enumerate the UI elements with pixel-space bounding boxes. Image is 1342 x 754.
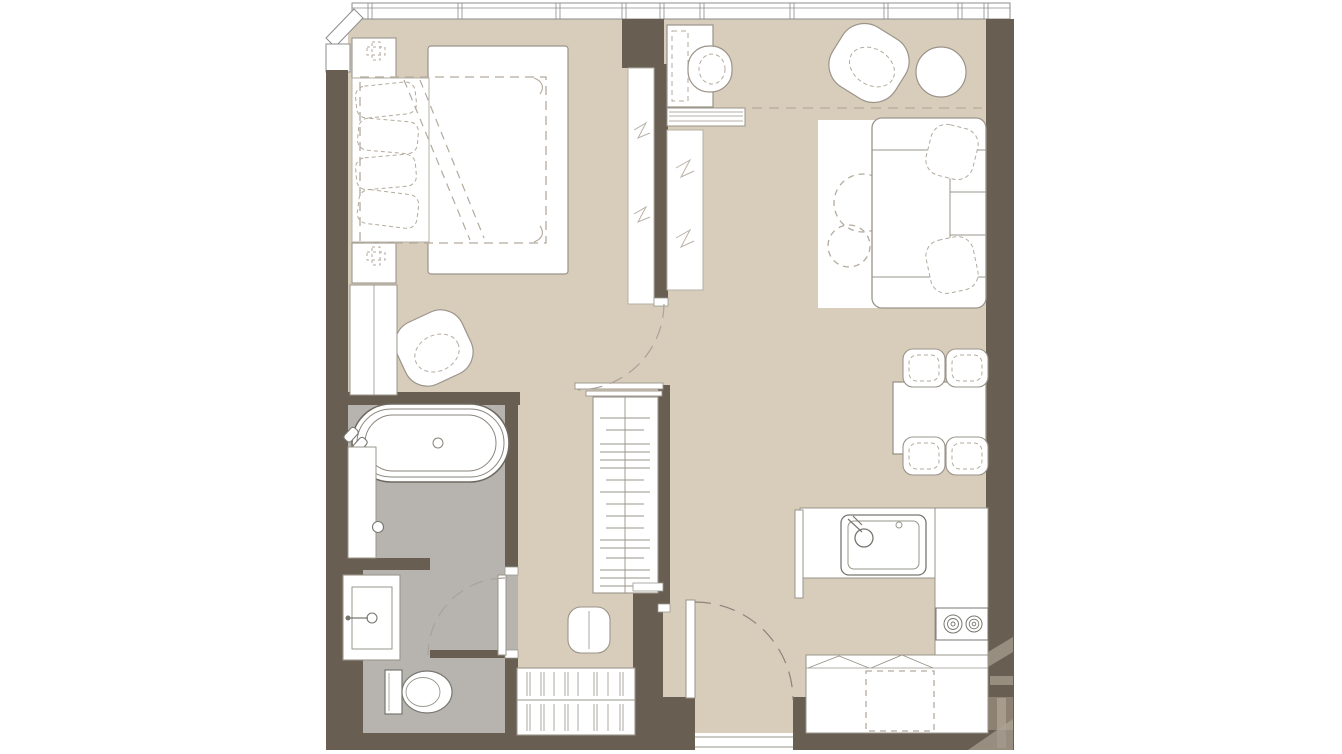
toilet-tank bbox=[385, 670, 402, 714]
wall-bottom-left bbox=[326, 733, 695, 750]
wall-bathroom-right-lower bbox=[505, 658, 518, 733]
wall-top-middle-block bbox=[622, 19, 664, 68]
floor-plan-page bbox=[0, 0, 1342, 754]
vanity-tap bbox=[346, 616, 351, 621]
jamb-bath-lower bbox=[505, 650, 518, 658]
bed-pillow-1 bbox=[354, 81, 417, 119]
nightstand-top bbox=[352, 38, 396, 78]
bedroom-dresser bbox=[350, 285, 397, 395]
nightstand-bottom bbox=[352, 243, 396, 283]
wardrobe-rail-upper bbox=[575, 383, 663, 389]
console-bedroom-side bbox=[628, 68, 654, 304]
bed-pillow-3 bbox=[355, 153, 418, 190]
window-band bbox=[352, 3, 1010, 19]
wall-bedroom-partition bbox=[654, 64, 668, 304]
wall-bathroom-inner bbox=[430, 650, 507, 658]
wardrobe-rail-lower bbox=[586, 391, 662, 396]
wall-under-chamfer bbox=[326, 44, 350, 72]
bed-pillow-2 bbox=[357, 117, 420, 154]
wall-entry-sill-left bbox=[663, 697, 695, 750]
side-table bbox=[916, 47, 966, 97]
watermark-step bbox=[988, 697, 1013, 730]
bed-pillow-4 bbox=[356, 188, 420, 229]
wall-bathroom-right-upper bbox=[505, 392, 518, 575]
wall-wardrobe-side bbox=[658, 385, 670, 612]
toilet-bowl bbox=[402, 671, 452, 713]
shoe-cabinet bbox=[517, 668, 635, 735]
jamb-wardrobe-end bbox=[658, 604, 670, 612]
shower-knob bbox=[373, 522, 384, 533]
watermark-bar bbox=[990, 676, 1013, 685]
kitchen-counter-panel bbox=[795, 510, 803, 598]
bathroom-door-leaf bbox=[498, 575, 506, 655]
jamb-entry-wall bbox=[633, 583, 663, 591]
floor-plan-svg bbox=[0, 0, 1342, 754]
kitchen-counter-bottom-run bbox=[806, 655, 988, 733]
jamb-partition-end bbox=[654, 298, 668, 306]
wall-bathroom-stub bbox=[348, 558, 430, 570]
shower-niche bbox=[348, 447, 376, 558]
console-living-side bbox=[667, 130, 703, 290]
entry-threshold bbox=[695, 737, 793, 747]
wardrobe bbox=[593, 397, 658, 593]
entry-door-leaf bbox=[686, 600, 695, 698]
jamb-bath-upper bbox=[505, 567, 518, 575]
tv-bench bbox=[667, 108, 745, 126]
bed-mattress bbox=[428, 46, 568, 274]
